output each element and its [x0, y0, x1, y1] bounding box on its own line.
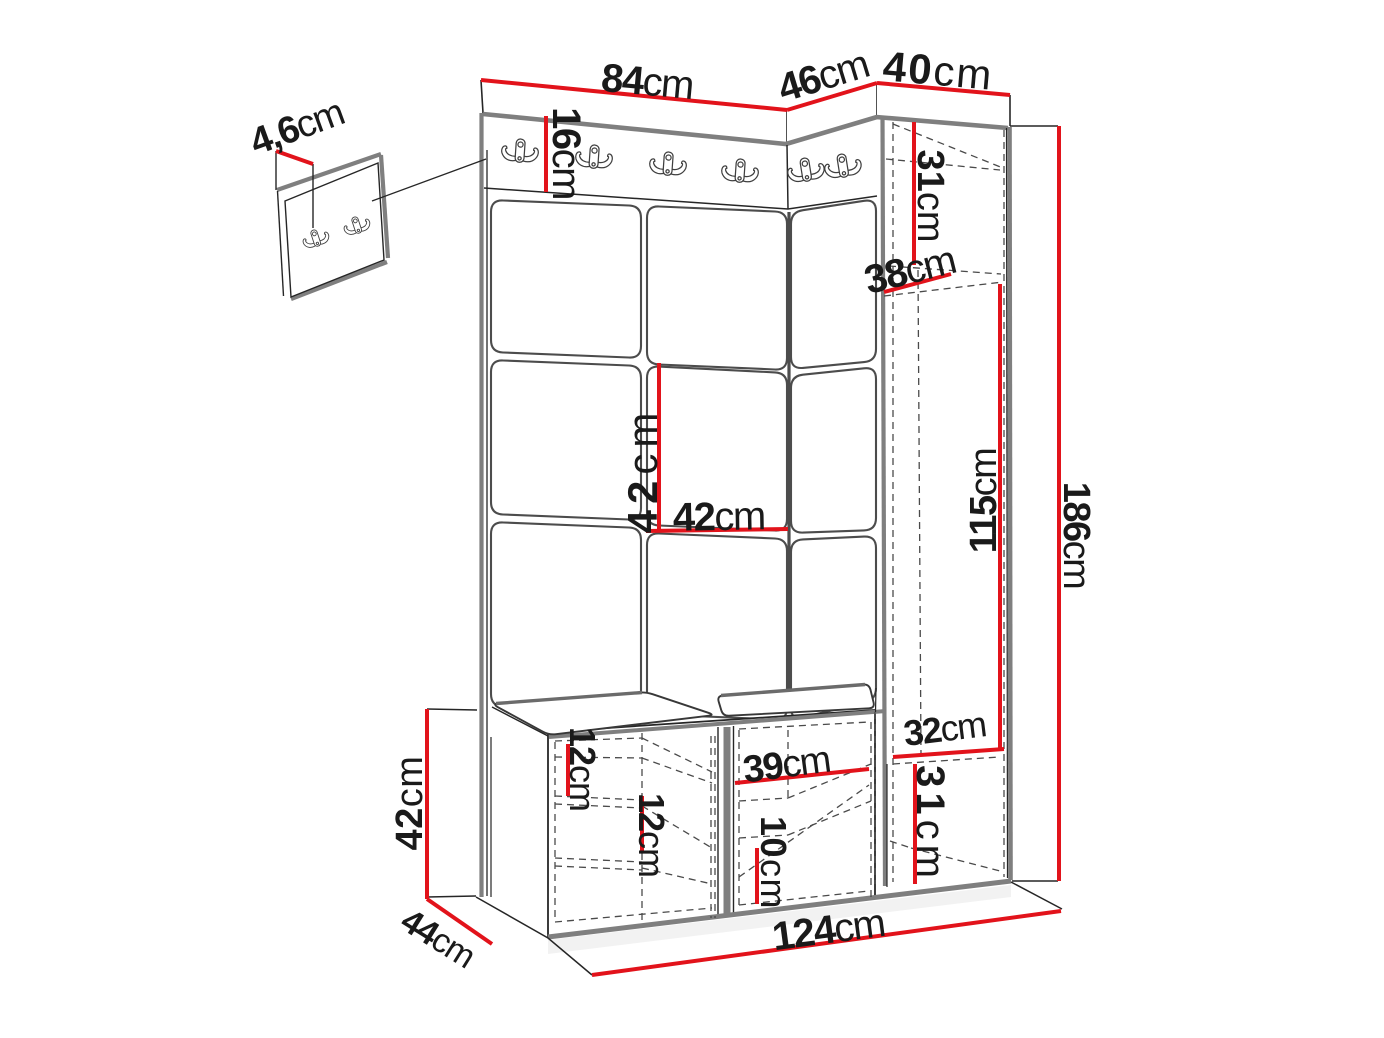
svg-text:12cm: 12cm — [562, 727, 603, 811]
svg-text:16cm: 16cm — [544, 107, 588, 199]
svg-text:42cm: 42cm — [619, 407, 666, 534]
svg-text:115cm: 115cm — [963, 449, 1005, 553]
svg-text:42cm: 42cm — [389, 756, 431, 851]
svg-text:31cm: 31cm — [909, 150, 951, 243]
svg-text:12cm: 12cm — [631, 793, 672, 877]
svg-text:42cm: 42cm — [672, 494, 765, 540]
svg-text:40cm: 40cm — [881, 42, 995, 98]
svg-text:84cm: 84cm — [599, 56, 694, 108]
svg-text:31cm: 31cm — [908, 765, 952, 883]
svg-text:10cm: 10cm — [753, 816, 794, 910]
svg-text:186cm: 186cm — [1055, 482, 1097, 589]
